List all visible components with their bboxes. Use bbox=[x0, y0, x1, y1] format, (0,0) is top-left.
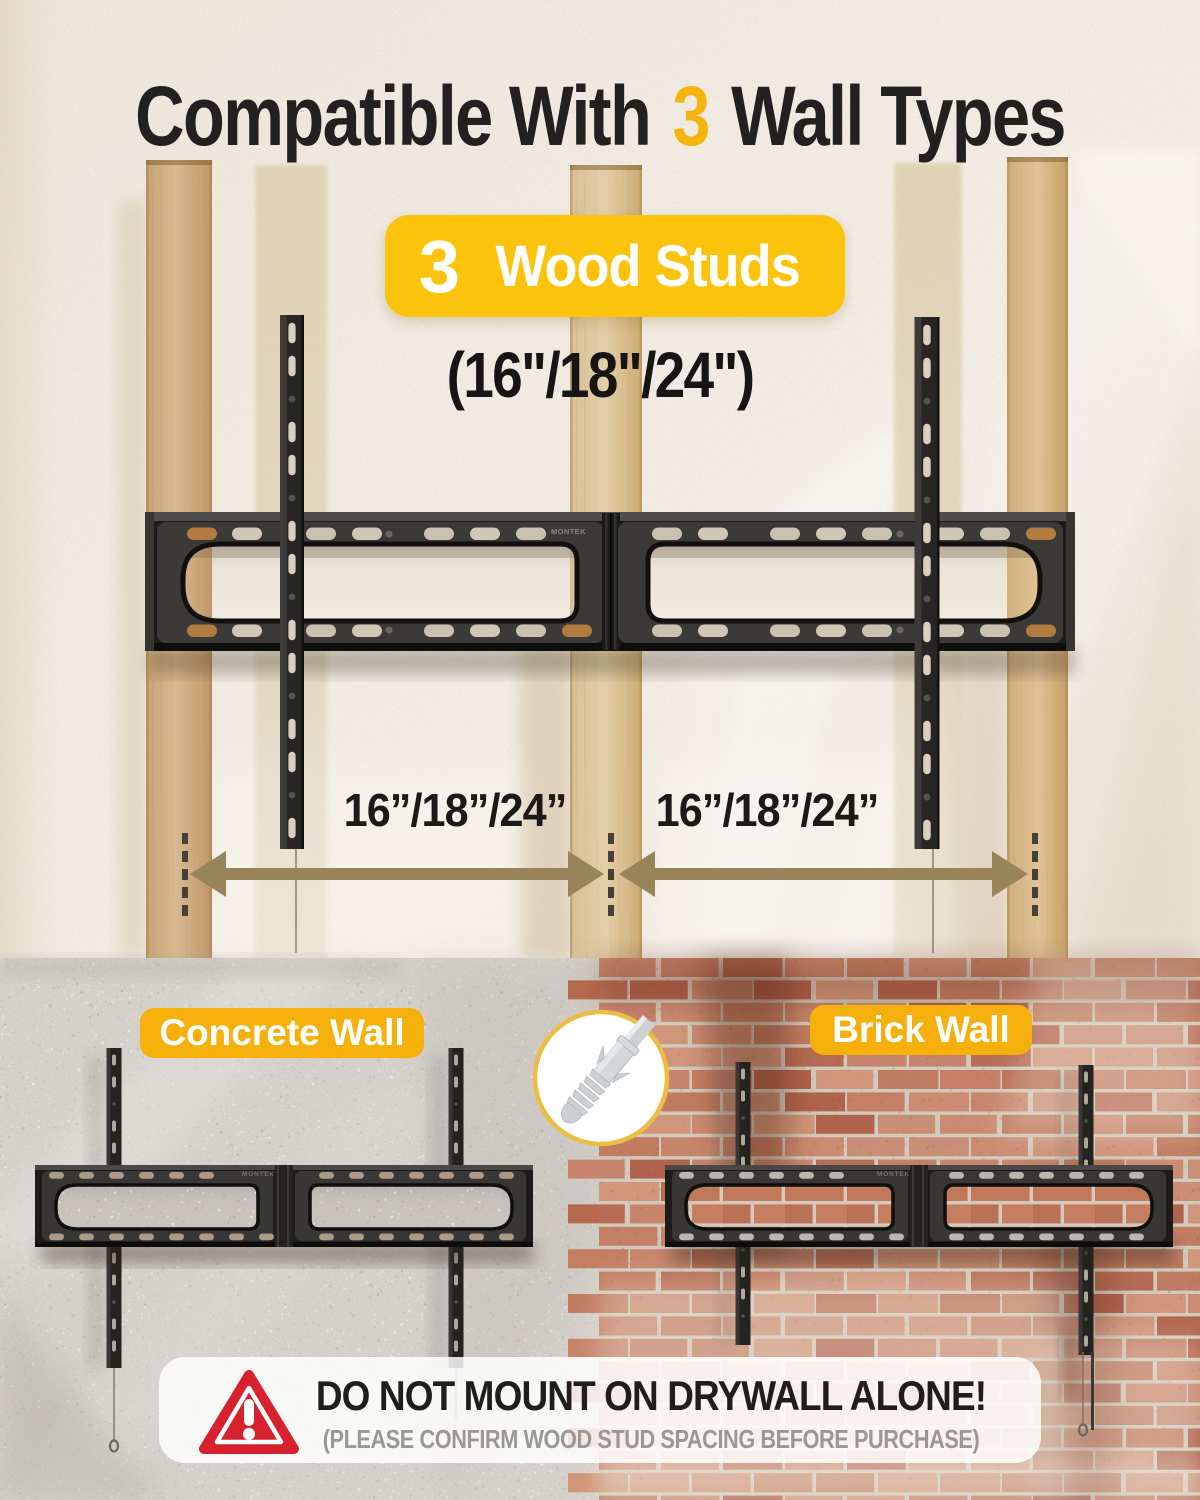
svg-text:MONTEK: MONTEK bbox=[551, 527, 586, 536]
svg-text:MONTEK: MONTEK bbox=[242, 1171, 275, 1178]
svg-text:MONTEK: MONTEK bbox=[877, 1171, 910, 1178]
